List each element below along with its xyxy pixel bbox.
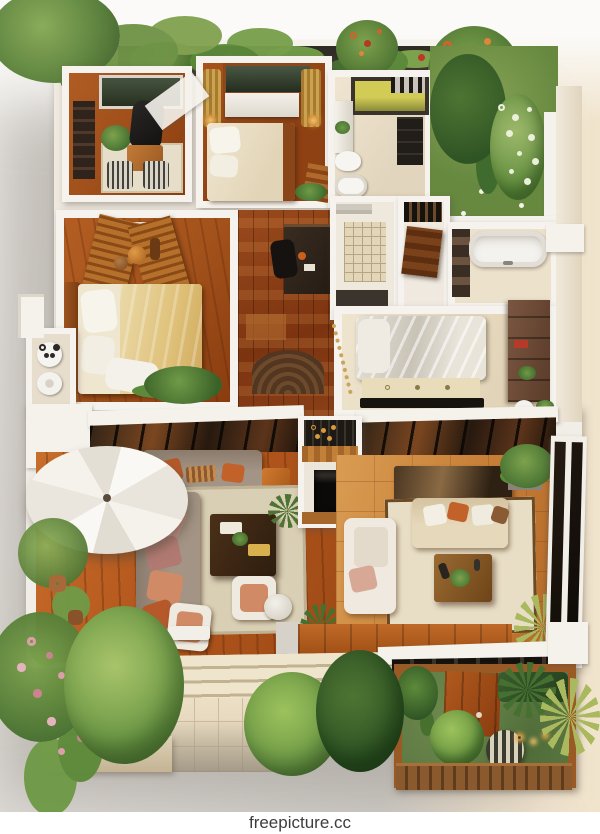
courtyard-fence <box>396 766 572 790</box>
hall-fan-rug <box>252 350 324 394</box>
coffee-table-plant <box>450 569 470 587</box>
bed-frame-edge <box>283 123 295 201</box>
pillow <box>80 288 119 334</box>
hall-paper <box>304 264 315 271</box>
white-wall-piece <box>548 622 588 664</box>
skirt-motif <box>386 386 389 389</box>
bedroom-top-window <box>223 63 313 95</box>
pillow <box>209 126 242 155</box>
hall-deco-orange <box>298 252 306 260</box>
bed-top <box>207 123 295 201</box>
closet-shelf-items <box>404 202 442 222</box>
roof-flowers-red <box>150 52 153 55</box>
tall-dresser <box>508 300 550 402</box>
table-plant <box>232 532 248 546</box>
storage-niche <box>26 328 76 412</box>
garden-bush-white-flowers <box>490 94 546 200</box>
bedroom-right <box>334 306 558 418</box>
tree-orange-small <box>336 20 398 76</box>
bathtub-room <box>448 222 558 310</box>
bathroom-sink <box>335 175 367 197</box>
shower-tiles <box>344 222 386 282</box>
watermark-bar: freepicture.cc <box>0 812 600 834</box>
bedroom-top-plant <box>295 183 327 201</box>
kitchen-shelf <box>391 77 425 93</box>
loveseat-cushion <box>354 527 388 567</box>
bed-right <box>356 316 488 408</box>
deck-edge-plants <box>18 518 88 588</box>
deck-plant-pots <box>56 582 59 585</box>
bedroom-left <box>56 210 238 410</box>
white-blossoms <box>500 106 503 109</box>
media-screen <box>304 420 356 446</box>
kitchen-plant <box>335 121 350 134</box>
towel-bar <box>336 204 372 210</box>
right-outer-wall <box>556 86 582 422</box>
pale-palm-large <box>540 678 600 756</box>
amber-vase <box>128 246 146 264</box>
parasol-pole-tip <box>103 494 111 502</box>
bed-skirt <box>362 378 480 398</box>
right-balcony-stub <box>546 224 584 252</box>
pillow <box>209 154 239 178</box>
pillow-patterned <box>185 465 216 483</box>
bedroom-top <box>196 56 332 208</box>
toilet <box>335 151 361 171</box>
tub-faucet <box>503 261 513 265</box>
pillow-orange <box>221 463 245 484</box>
kitchen-appliance <box>397 117 423 165</box>
sofa-pillow-orange <box>446 501 469 523</box>
hall-step-block <box>246 314 286 340</box>
left-balcony-stub <box>18 294 44 338</box>
door-handle <box>476 712 482 718</box>
bedroom-left-plant <box>144 366 222 404</box>
panda-ears <box>41 346 44 349</box>
living-plant-top <box>500 444 554 488</box>
table-tray-yellow <box>248 544 270 556</box>
bedside-lamp-right <box>308 115 319 126</box>
closet-wood-door <box>401 226 443 278</box>
pillow <box>358 319 390 373</box>
watermark-text: freepicture.cc <box>249 813 351 832</box>
bath-counter <box>452 229 470 297</box>
towel-roll <box>37 372 62 395</box>
table-figurine-2 <box>474 559 480 571</box>
garden-lights <box>518 736 521 739</box>
kitchen-room <box>328 70 432 208</box>
dark-green-tree <box>316 650 404 772</box>
clay-pot <box>114 256 128 270</box>
floorplan-render: freepicture.cc <box>0 0 600 834</box>
lettuce-bush <box>430 710 484 766</box>
office-guest-chair-2 <box>143 161 169 189</box>
shower-room <box>330 196 400 320</box>
hallway <box>238 210 336 420</box>
red-book <box>514 340 528 348</box>
dresser-plant <box>518 366 536 380</box>
sofa-pillow-white <box>422 503 447 527</box>
office-cabinet <box>73 101 95 179</box>
ac-panel <box>225 93 299 117</box>
white-tray-table <box>168 626 210 640</box>
light-green-tree <box>64 606 184 764</box>
flowers-orange-small <box>352 34 355 37</box>
hall-closet <box>398 196 450 322</box>
pink-blossoms <box>30 640 33 643</box>
tall-vase <box>150 238 160 260</box>
screen-lights <box>312 426 315 429</box>
footboard <box>360 398 484 408</box>
office-guest-chair-1 <box>107 161 133 189</box>
hall-chair <box>269 239 298 280</box>
round-side-table <box>264 594 292 620</box>
